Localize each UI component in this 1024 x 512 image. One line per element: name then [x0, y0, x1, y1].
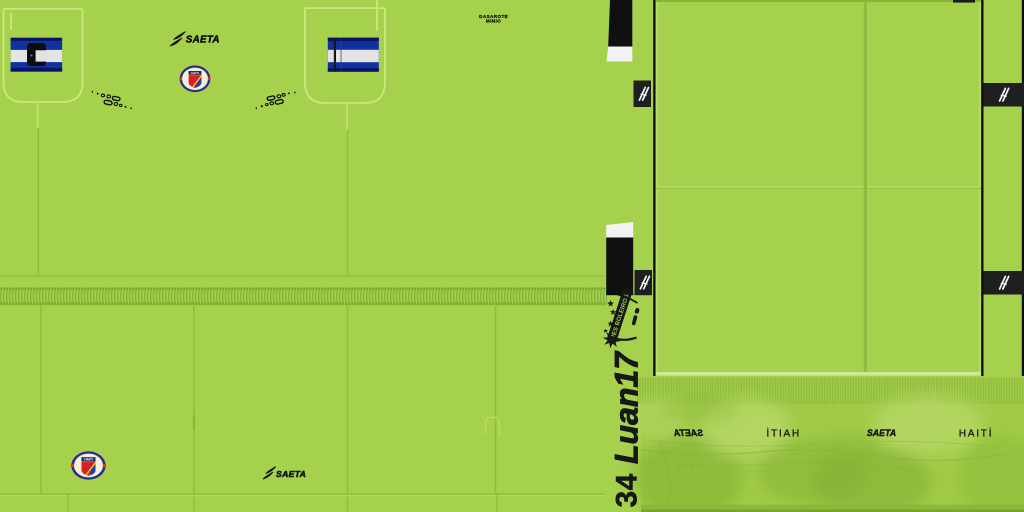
svg-text:SAETA: SAETA	[674, 428, 703, 438]
svg-text:SAETA: SAETA	[276, 469, 306, 479]
svg-text:SAETA: SAETA	[867, 428, 896, 438]
svg-text:HAITİ: HAITİ	[765, 427, 800, 440]
svg-text:HAITI: HAITI	[84, 458, 93, 462]
svg-text:SAETA: SAETA	[186, 35, 220, 46]
svg-text:Luan17: Luan17	[609, 350, 645, 464]
svg-text:34: 34	[611, 473, 644, 507]
svg-text:MINIO: MINIO	[486, 18, 501, 23]
svg-text:HAITI: HAITI	[191, 71, 199, 75]
svg-text:HAITİ: HAITİ	[959, 427, 994, 440]
